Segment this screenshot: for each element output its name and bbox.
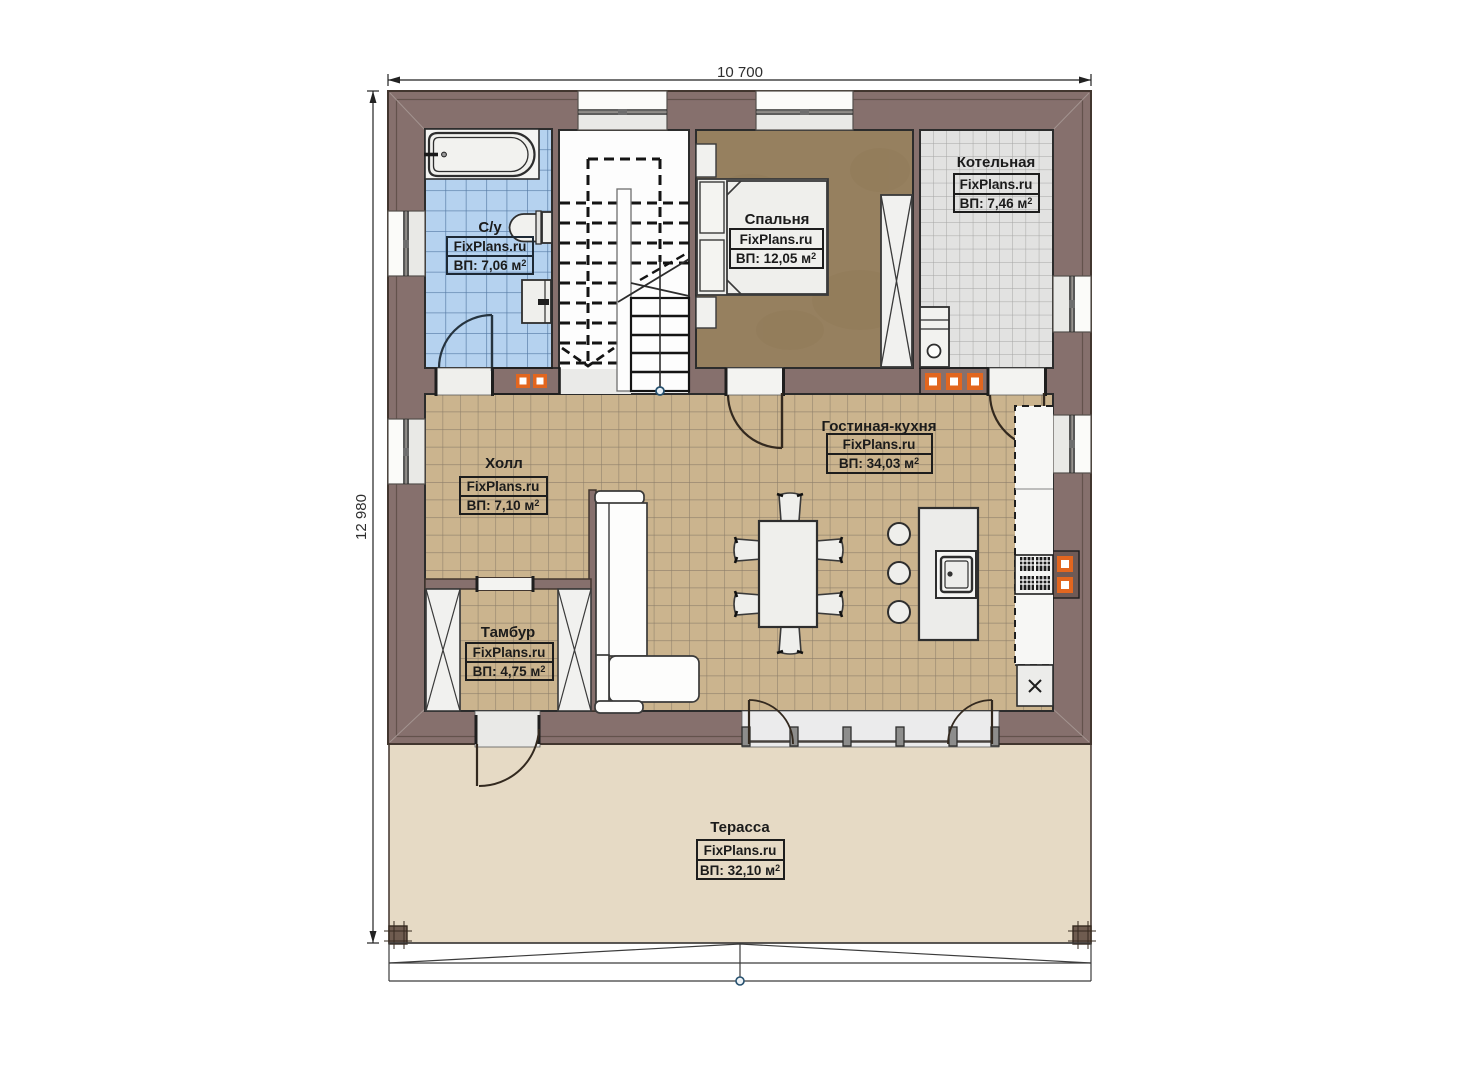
svg-text:Спальня: Спальня [745,211,810,228]
svg-text:С/у: С/у [478,219,502,236]
svg-text:FixPlans.ru: FixPlans.ru [843,437,916,452]
svg-text:FixPlans.ru: FixPlans.ru [467,479,540,494]
svg-text:Тамбур: Тамбур [481,624,535,641]
svg-text:ВП: 7,46 м2: ВП: 7,46 м2 [960,196,1033,211]
svg-text:ВП: 7,10 м2: ВП: 7,10 м2 [467,498,540,513]
svg-text:FixPlans.ru: FixPlans.ru [454,239,527,254]
svg-text:FixPlans.ru: FixPlans.ru [473,645,546,660]
svg-text:12 980: 12 980 [353,494,370,540]
svg-text:ВП: 32,10 м2: ВП: 32,10 м2 [700,863,780,878]
svg-text:ВП: 7,06 м2: ВП: 7,06 м2 [454,258,527,273]
svg-text:Холл: Холл [485,455,523,472]
svg-text:10 700: 10 700 [717,64,763,81]
svg-text:FixPlans.ru: FixPlans.ru [740,232,813,247]
svg-text:FixPlans.ru: FixPlans.ru [704,843,777,858]
svg-text:ВП: 12,05 м2: ВП: 12,05 м2 [736,251,816,266]
svg-text:Гостиная-кухня: Гостиная-кухня [822,418,937,435]
svg-text:ВП: 34,03 м2: ВП: 34,03 м2 [839,456,919,471]
svg-text:ВП: 4,75 м2: ВП: 4,75 м2 [473,664,546,679]
svg-text:FixPlans.ru: FixPlans.ru [960,177,1033,192]
svg-text:Котельная: Котельная [957,154,1036,171]
svg-text:Терасса: Терасса [710,819,770,836]
